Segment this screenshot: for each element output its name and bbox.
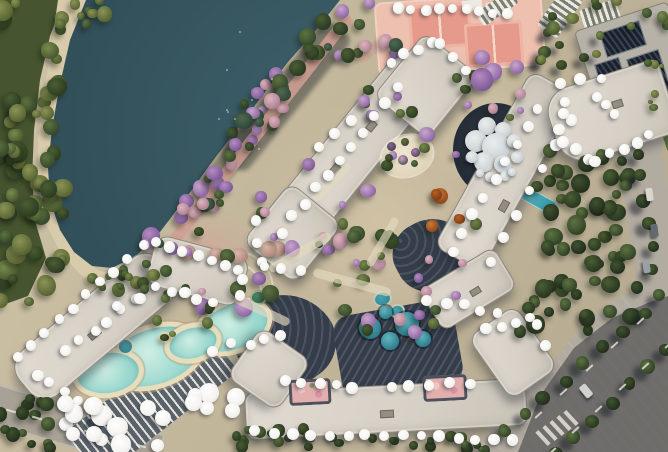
- umbrella-parasol: [589, 156, 600, 167]
- umbrella-parasol: [359, 429, 370, 440]
- umbrella-parasol: [191, 294, 202, 305]
- umbrella-parasol: [605, 148, 615, 158]
- tree: [612, 190, 621, 199]
- tree: [262, 285, 280, 302]
- tree: [362, 324, 373, 336]
- tree: [609, 224, 623, 236]
- bubble-canopy: [508, 168, 516, 176]
- tree: [353, 259, 361, 267]
- umbrella-parasol: [108, 267, 118, 277]
- umbrella-parasol: [277, 228, 288, 239]
- umbrella-parasol: [480, 323, 491, 334]
- umbrella-parasol: [523, 121, 534, 132]
- plant: [387, 142, 396, 151]
- tree: [603, 305, 617, 318]
- tree: [229, 138, 242, 152]
- tree: [260, 207, 270, 217]
- umbrella-parasol: [101, 317, 112, 328]
- umbrella-parasol: [393, 82, 403, 92]
- umbrella-parasol: [185, 394, 202, 411]
- tree: [37, 275, 56, 296]
- tree: [475, 50, 490, 65]
- umbrella-parasol: [486, 257, 496, 267]
- umbrella-parasol: [57, 396, 73, 412]
- umbrella-parasol: [207, 256, 216, 265]
- tree: [557, 242, 569, 255]
- tree: [339, 201, 347, 208]
- umbrella-parasol: [491, 174, 502, 185]
- tree: [6, 188, 19, 202]
- tree: [289, 60, 306, 77]
- umbrella-parasol: [296, 378, 306, 388]
- umbrella-parasol: [296, 265, 307, 276]
- umbrella-parasol: [462, 4, 472, 14]
- tree: [620, 180, 633, 191]
- tree: [419, 127, 435, 142]
- tree: [606, 397, 620, 410]
- umbrella-parasol: [335, 156, 345, 166]
- umbrella-parasol: [155, 410, 171, 426]
- umbrella-parasol: [151, 237, 161, 247]
- tree: [214, 190, 224, 199]
- umbrella-parasol: [310, 182, 321, 193]
- tree: [70, 0, 81, 10]
- umbrella-parasol: [286, 210, 297, 221]
- umbrella-parasol: [597, 74, 606, 83]
- tree: [471, 68, 493, 91]
- tree: [9, 104, 27, 121]
- tree: [302, 158, 315, 171]
- umbrella-parasol: [325, 431, 335, 441]
- tree: [564, 191, 581, 208]
- umbrella-parasol: [275, 330, 286, 341]
- umbrella-parasol: [424, 380, 434, 390]
- tree: [54, 179, 73, 197]
- umbrella-parasol: [251, 215, 262, 226]
- deck-pool-5: [379, 306, 392, 319]
- tree: [315, 13, 331, 30]
- umbrella-parasol: [315, 378, 326, 389]
- umbrella-parasol: [346, 382, 357, 393]
- tree: [409, 441, 417, 450]
- roof-vent: [380, 410, 394, 419]
- tree: [425, 255, 433, 264]
- umbrella-parasol: [644, 130, 653, 139]
- umbrella-parasol: [558, 108, 569, 119]
- tree: [651, 90, 659, 98]
- umbrella-parasol: [610, 109, 619, 118]
- tree: [580, 310, 591, 319]
- umbrella-parasol: [252, 238, 261, 247]
- lake-sparkle: [227, 111, 229, 113]
- umbrella-parasol: [555, 78, 566, 89]
- tree: [8, 274, 18, 283]
- umbrella-parasol: [246, 340, 256, 350]
- umbrella-parasol: [570, 143, 582, 155]
- umbrella-parasol: [441, 298, 452, 309]
- tree: [202, 317, 213, 329]
- tree: [347, 230, 360, 243]
- tree: [299, 28, 316, 45]
- umbrella-parasol: [200, 401, 214, 415]
- umbrella-parasol: [60, 345, 71, 356]
- umbrella-parasol: [167, 287, 177, 297]
- bubble-canopy: [476, 169, 484, 177]
- umbrella-parasol: [226, 338, 236, 348]
- plant: [385, 154, 393, 162]
- tree: [631, 281, 643, 294]
- tree: [642, 8, 652, 19]
- tree: [216, 199, 224, 206]
- umbrella-parasol: [413, 45, 424, 56]
- umbrella-parasol: [470, 435, 480, 445]
- tree: [571, 240, 586, 254]
- tree: [206, 166, 223, 181]
- tree: [160, 334, 169, 342]
- tree: [566, 13, 579, 24]
- tree: [364, 0, 375, 9]
- tree: [548, 12, 557, 21]
- tree: [87, 9, 97, 19]
- umbrella-parasol: [488, 9, 497, 18]
- tree: [408, 325, 422, 338]
- umbrella-parasol: [433, 430, 445, 442]
- tree: [620, 244, 637, 260]
- tree: [269, 116, 280, 128]
- plant: [411, 160, 418, 167]
- umbrella-parasol: [269, 428, 280, 439]
- tree: [224, 150, 236, 162]
- umbrella-parasol: [225, 403, 240, 418]
- umbrella-parasol: [68, 304, 79, 315]
- tree: [77, 12, 85, 20]
- tree: [585, 255, 602, 272]
- tree: [627, 22, 635, 30]
- tree: [324, 43, 333, 51]
- plant: [411, 148, 420, 157]
- umbrella-parasol: [511, 210, 522, 221]
- umbrella-parasol: [235, 290, 245, 300]
- umbrella-parasol: [475, 306, 485, 316]
- tree: [426, 220, 438, 232]
- umbrella-parasol: [435, 38, 446, 49]
- tree: [414, 310, 425, 321]
- tree: [12, 234, 32, 255]
- tree: [333, 22, 348, 35]
- umbrella-parasol: [465, 379, 475, 389]
- tree: [601, 276, 620, 293]
- tree: [589, 276, 600, 286]
- deck-pool-2: [381, 332, 399, 350]
- umbrella-parasol: [601, 100, 611, 110]
- tree: [142, 260, 151, 269]
- umbrella-parasol: [540, 340, 551, 351]
- tree: [464, 101, 472, 109]
- tree: [571, 174, 590, 193]
- umbrella-parasol: [502, 8, 513, 19]
- tree: [634, 169, 646, 181]
- umbrella-parasol: [379, 97, 391, 109]
- tree: [194, 227, 203, 236]
- tree: [8, 129, 23, 142]
- tree: [547, 21, 560, 35]
- umbrella-parasol: [287, 428, 299, 440]
- tree: [535, 391, 550, 406]
- lake-sparkle: [226, 69, 228, 71]
- tree: [40, 180, 57, 197]
- tree: [560, 298, 571, 310]
- tree: [125, 273, 132, 281]
- tree: [41, 417, 55, 431]
- aerial-site-plan: [0, 0, 668, 452]
- umbrella-parasol: [560, 97, 570, 107]
- tree: [43, 119, 59, 135]
- lake-sparkle: [234, 118, 236, 120]
- tree: [27, 440, 36, 448]
- umbrella-parasol: [329, 128, 340, 139]
- tree: [596, 31, 604, 39]
- tree: [19, 197, 39, 217]
- umbrella-parasol: [393, 2, 404, 13]
- umbrella-parasol: [323, 170, 334, 181]
- bubble-canopy: [466, 151, 478, 163]
- tree: [596, 340, 609, 353]
- umbrella-parasol: [358, 128, 368, 138]
- umbrella-parasol: [91, 326, 101, 336]
- umbrella-parasol: [237, 274, 248, 285]
- plant: [398, 155, 408, 165]
- tree: [585, 415, 599, 428]
- tree: [639, 308, 652, 319]
- umbrella-parasol: [448, 52, 457, 61]
- tree: [556, 180, 568, 191]
- umbrella-parasol: [199, 383, 219, 403]
- tree: [406, 106, 417, 118]
- tree: [360, 184, 376, 198]
- umbrella-parasol: [511, 318, 521, 328]
- tree: [389, 437, 397, 444]
- lake-sparkle: [239, 31, 241, 33]
- umbrella-parasol: [134, 293, 145, 304]
- tree: [0, 230, 13, 243]
- tree: [39, 397, 53, 412]
- umbrella-parasol: [507, 434, 518, 445]
- umbrella-parasol: [574, 73, 586, 85]
- tree: [24, 297, 34, 307]
- umbrella-parasol: [459, 299, 469, 309]
- umbrella-parasol: [84, 397, 103, 416]
- tree: [506, 114, 514, 122]
- bubble-canopy: [511, 151, 523, 163]
- tree: [152, 315, 162, 326]
- tree: [255, 118, 263, 127]
- tree: [648, 241, 660, 253]
- umbrella-parasol: [332, 380, 341, 389]
- umbrella-parasol: [632, 137, 644, 149]
- tree: [44, 442, 57, 452]
- umbrella-parasol: [532, 319, 542, 329]
- umbrella-parasol: [280, 375, 291, 386]
- tree: [236, 440, 249, 452]
- umbrella-parasol: [553, 124, 564, 135]
- umbrella-parasol: [66, 427, 80, 441]
- umbrella-parasol: [220, 260, 231, 271]
- tree: [197, 198, 209, 211]
- umbrella-parasol: [111, 434, 131, 452]
- tree: [562, 278, 578, 292]
- tree: [117, 283, 125, 290]
- tree: [336, 4, 349, 17]
- tree: [454, 214, 465, 224]
- lake-sparkle: [226, 109, 228, 111]
- tree: [610, 260, 626, 274]
- umbrella-parasol: [387, 58, 396, 67]
- umbrella-parasol: [497, 322, 507, 332]
- umbrella-parasol: [276, 263, 287, 274]
- umbrella-parasol: [444, 377, 455, 388]
- umbrella-parasol: [193, 250, 204, 261]
- tree: [590, 197, 605, 213]
- tree: [653, 289, 665, 302]
- tree: [251, 87, 264, 99]
- umbrella-parasol: [461, 66, 471, 76]
- tree: [541, 240, 554, 254]
- umbrella-parasol: [557, 136, 569, 148]
- tree: [458, 259, 468, 268]
- tree: [40, 152, 55, 168]
- umbrella-parasol: [387, 382, 397, 392]
- umbrella-parasol: [112, 301, 122, 311]
- umbrella-parasol: [86, 426, 102, 442]
- umbrella-parasol: [398, 48, 409, 59]
- umbrella-parasol: [513, 140, 522, 149]
- tree: [177, 203, 189, 214]
- umbrella-parasol: [13, 352, 23, 362]
- tree: [535, 279, 552, 298]
- plant: [401, 138, 409, 146]
- umbrella-parasol: [466, 208, 477, 219]
- tree: [633, 149, 644, 160]
- umbrella-parasol: [403, 380, 414, 391]
- umbrella-parasol: [478, 193, 488, 203]
- tree: [338, 304, 352, 316]
- umbrella-parasol: [26, 340, 36, 350]
- umbrella-parasol: [81, 289, 90, 298]
- tree: [419, 143, 429, 154]
- tree: [649, 104, 658, 112]
- tree: [41, 42, 60, 59]
- umbrella-parasol: [344, 431, 353, 440]
- umbrella-parasol: [208, 298, 218, 308]
- umbrella-parasol: [32, 370, 44, 382]
- umbrella-parasol: [207, 346, 218, 357]
- tree: [358, 95, 370, 107]
- lake-sparkle: [251, 99, 253, 101]
- umbrella-parasol: [398, 430, 408, 440]
- tree: [245, 142, 255, 151]
- umbrella-parasol: [474, 6, 484, 16]
- tree: [22, 164, 38, 182]
- umbrella-parasol: [74, 335, 83, 344]
- tree: [567, 215, 586, 235]
- tree: [616, 326, 630, 339]
- tree: [235, 112, 253, 129]
- umbrella-parasol: [448, 247, 459, 258]
- tree: [338, 218, 349, 229]
- tree: [354, 19, 365, 30]
- tree: [341, 48, 355, 63]
- tree: [603, 169, 619, 186]
- tree: [252, 272, 267, 285]
- tree: [264, 93, 280, 108]
- umbrella-parasol: [44, 377, 54, 387]
- tree: [97, 6, 112, 22]
- tree: [47, 257, 65, 273]
